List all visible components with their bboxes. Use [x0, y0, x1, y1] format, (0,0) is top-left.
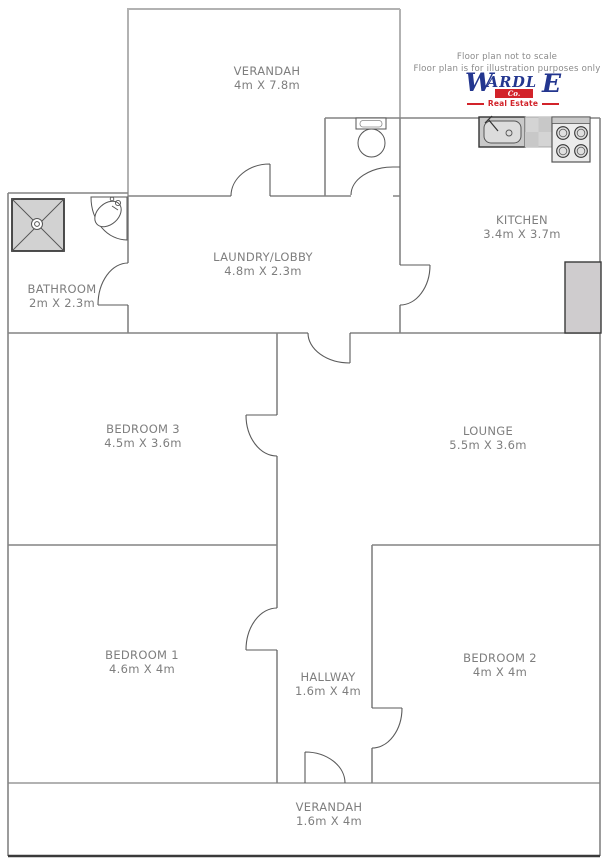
room-dims-bedroom-1: 4.6m X 4m [109, 662, 175, 676]
room-label-hallway: HALLWAY [300, 670, 356, 684]
verandah-top-outline [128, 8, 400, 196]
stove-fixture [552, 117, 590, 162]
room-dims-bedroom-2: 4m X 4m [473, 665, 527, 679]
room-dims-bedroom-3: 4.5m X 3.6m [104, 436, 181, 450]
room-dims-lounge: 5.5m X 3.6m [449, 438, 526, 452]
room-dims-bathroom: 2m X 2.3m [29, 296, 95, 310]
disclaimer-line-1: Floor plan not to scale [457, 52, 557, 62]
pantry-cupboard-block [565, 262, 601, 333]
bedroom-2-door [372, 708, 402, 748]
room-label-bedroom-3: BEDROOM 3 [106, 422, 180, 436]
agency-logo: W ARDL E Co. Real Estate [458, 74, 568, 108]
corner-basin-fixture [90, 196, 127, 240]
kitchen-door [400, 265, 430, 305]
bedroom-1-door [246, 608, 277, 650]
room-dims-verandah-top: 4m X 7.8m [234, 78, 300, 92]
logo-co-badge: Co. [495, 89, 533, 98]
room-label-bedroom-1: BEDROOM 1 [105, 648, 179, 662]
room-label-verandah-bottom: VERANDAH [296, 800, 363, 814]
hallway-door [305, 752, 345, 783]
room-dims-laundry-lobby: 4.8m X 2.3m [224, 264, 301, 278]
tagline-rule-left [467, 103, 484, 105]
logo-letter-e: E [542, 71, 561, 96]
bedroom-3-door [246, 415, 277, 456]
tagline-rule-right [542, 103, 559, 105]
room-label-bathroom: BATHROOM [28, 282, 97, 296]
room-dims-verandah-bottom: 1.6m X 4m [296, 814, 362, 828]
laundry-verandah-door [231, 164, 270, 196]
logo-tagline: Real Estate [458, 100, 568, 108]
room-label-bedroom-2: BEDROOM 2 [463, 651, 537, 665]
counter-fixture [525, 117, 552, 147]
room-label-laundry-lobby: LAUNDRY/LOBBY [213, 250, 313, 264]
tagline-text: Real Estate [488, 100, 538, 108]
kitchen-sink-fixture [479, 116, 525, 147]
room-label-verandah-top: VERANDAH [234, 64, 301, 78]
room-dims-hallway: 1.6m X 4m [295, 684, 361, 698]
floor-plan-drawing: Floor plan not to scale Floor plan is fo… [0, 0, 604, 864]
lounge-door [308, 333, 350, 363]
wc-door [351, 167, 400, 195]
shower-fixture [12, 199, 64, 251]
bathroom-door [98, 263, 128, 305]
room-dims-kitchen: 3.4m X 3.7m [483, 227, 560, 241]
disclaimer-line-2: Floor plan is for illustration purposes … [413, 64, 600, 74]
toilet-fixture [356, 118, 386, 157]
logo-co-text: Co. [508, 90, 521, 97]
floor-plan-page: Floor plan not to scale Floor plan is fo… [0, 0, 604, 864]
room-label-kitchen: KITCHEN [496, 213, 548, 227]
room-label-lounge: LOUNGE [463, 424, 513, 438]
